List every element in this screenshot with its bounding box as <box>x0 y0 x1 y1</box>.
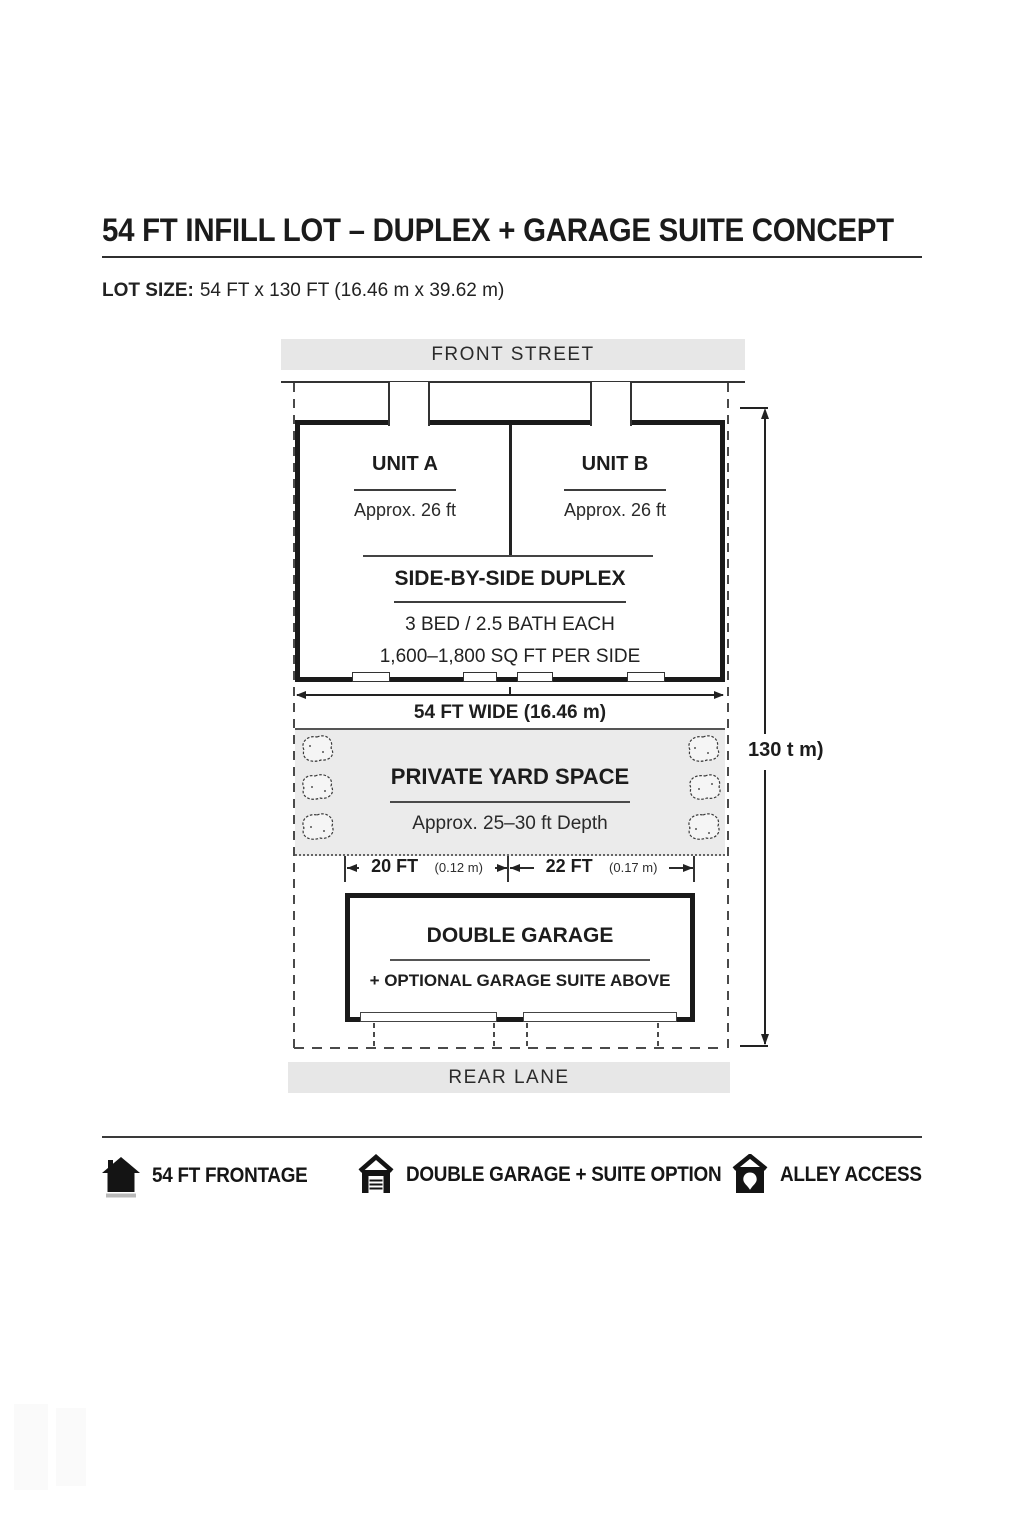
lot-boundary-rear <box>294 1047 726 1049</box>
duplex-area: 1,600–1,800 SQ FT PER SIDE <box>300 646 720 668</box>
garage-building: DOUBLE GARAGE + OPTIONAL GARAGE SUITE AB… <box>345 893 695 1022</box>
garage-divider-line <box>390 959 650 961</box>
unit-a-underline <box>354 489 456 491</box>
garage-dim-tick <box>507 856 509 882</box>
yard-depth: Approx. 25–30 ft Depth <box>295 813 725 835</box>
units-separator-line <box>363 555 653 557</box>
front-street-banner: FRONT STREET <box>281 339 745 370</box>
duplex-building: UNIT A Approx. 26 ft UNIT B Approx. 26 f… <box>295 420 725 682</box>
unit-b-name: UNIT B <box>510 453 720 476</box>
driveway-dash <box>657 1023 659 1048</box>
driveway-dash <box>493 1023 495 1048</box>
unit-b: UNIT B Approx. 26 ft <box>510 453 720 521</box>
yard-underline <box>390 801 630 803</box>
legend-item-alley: ALLEY ACCESS <box>732 1154 937 1196</box>
legend-label-alley: ALLEY ACCESS <box>780 1163 922 1187</box>
frontage-house-icon <box>102 1154 140 1198</box>
duplex-window <box>463 672 497 682</box>
arrow-down-icon <box>761 1034 769 1045</box>
lot-size-line: LOT SIZE:54 FT x 130 FT (16.46 m x 39.62… <box>102 280 504 302</box>
lot-width-label: 54 FT WIDE (16.46 m) <box>297 702 723 724</box>
garage-name: DOUBLE GARAGE <box>350 924 690 948</box>
garage-door-opening <box>360 1012 497 1022</box>
duplex-window <box>517 672 553 682</box>
lot-size-label: LOT SIZE: <box>102 280 194 301</box>
garage-dim-tick <box>344 856 346 882</box>
arrow-up-icon <box>761 408 769 419</box>
legend-label-garage-suite: DOUBLE GARAGE + SUITE OPTION <box>406 1163 721 1187</box>
duplex-interior: UNIT A Approx. 26 ft UNIT B Approx. 26 f… <box>300 425 720 677</box>
garage-bay-left-metric: (0.12 m) <box>429 860 489 875</box>
rear-lane-banner: REAR LANE <box>288 1062 730 1093</box>
lot-depth-dimension-line <box>764 770 766 1044</box>
unit-a-name: UNIT A <box>300 453 510 476</box>
front-street-label: FRONT STREET <box>431 344 594 366</box>
legend-label-frontage: 54 FT FRONTAGE <box>152 1164 307 1188</box>
unit-b-width: Approx. 26 ft <box>510 500 720 521</box>
arrow-left-icon <box>296 691 306 699</box>
corner-watermark <box>56 1408 86 1486</box>
yard-name: PRIVATE YARD SPACE <box>295 764 725 790</box>
garage-door-opening <box>523 1012 677 1022</box>
unit-a: UNIT A Approx. 26 ft <box>300 453 510 521</box>
driveway-dash <box>373 1023 375 1048</box>
duplex-window <box>627 672 665 682</box>
garage-bay-left-label: 20 FT <box>365 856 424 876</box>
alley-access-icon <box>732 1154 768 1196</box>
lot-depth-dimension-line <box>764 412 766 734</box>
private-yard: PRIVATE YARD SPACE Approx. 25–30 ft Dept… <box>295 728 725 856</box>
driveway-dash <box>526 1023 528 1048</box>
arrow-right-icon <box>714 691 724 699</box>
lot-depth-bottom-tick <box>740 1045 768 1047</box>
lot-depth-label: 130 t m) <box>744 736 828 765</box>
page-title: 54 FT INFILL LOT – DUPLEX + GARAGE SUITE… <box>102 212 894 249</box>
duplex-type-label: SIDE-BY-SIDE DUPLEX <box>300 567 720 591</box>
garage-bay-right-label: 22 FT <box>540 856 599 876</box>
shrub-row-left-icon <box>295 732 339 854</box>
lot-width-center-tick <box>509 687 511 695</box>
garage-bay-left-dimension: 20 FT (0.12 m) <box>347 867 507 869</box>
rear-lane-label: REAR LANE <box>448 1067 569 1089</box>
title-rule <box>102 256 922 258</box>
front-property-line <box>281 381 745 383</box>
duplex-window <box>352 672 390 682</box>
lot-size-value: 54 FT x 130 FT (16.46 m x 39.62 m) <box>200 280 504 301</box>
footer-rule <box>102 1136 922 1138</box>
shrub-row-right-icon <box>681 732 725 854</box>
unit-b-underline <box>564 489 666 491</box>
legend-item-garage-suite: DOUBLE GARAGE + SUITE OPTION <box>358 1154 756 1196</box>
walkway-unit-a <box>388 382 430 426</box>
duplex-bed-bath: 3 BED / 2.5 BATH EACH <box>300 614 720 636</box>
garage-dim-tick <box>693 856 695 882</box>
duplex-description: SIDE-BY-SIDE DUPLEX 3 BED / 2.5 BATH EAC… <box>300 567 720 668</box>
legend-item-frontage: 54 FT FRONTAGE <box>102 1154 325 1198</box>
site-plan-page: 54 FT INFILL LOT – DUPLEX + GARAGE SUITE… <box>0 0 1024 1536</box>
lot-boundary-right <box>727 383 729 1049</box>
double-garage-icon <box>358 1154 394 1196</box>
duplex-type-underline <box>394 601 626 603</box>
garage-bay-right-metric: (0.17 m) <box>603 860 663 875</box>
unit-a-width: Approx. 26 ft <box>300 500 510 521</box>
walkway-unit-b <box>590 382 632 426</box>
garage-bay-right-dimension: 22 FT (0.17 m) <box>510 867 693 869</box>
garage-suite-option: + OPTIONAL GARAGE SUITE ABOVE <box>350 971 690 991</box>
corner-watermark <box>14 1404 48 1490</box>
